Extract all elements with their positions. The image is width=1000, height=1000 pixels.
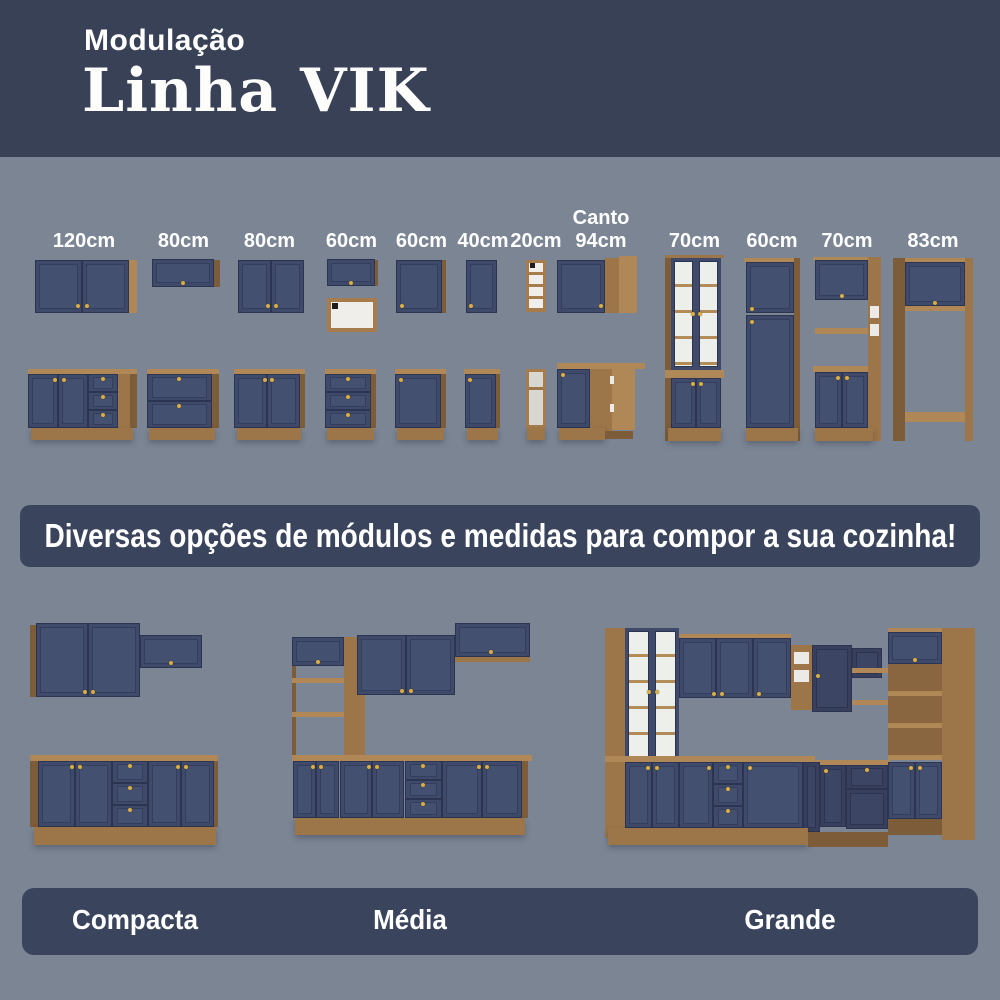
wood-panel — [371, 374, 376, 428]
wood-panel — [129, 260, 137, 313]
module-40cm: 40cm — [464, 200, 502, 445]
banner-text: Diversas opções de módulos e medidas par… — [44, 517, 956, 555]
kitchen-label-grande: Grande — [744, 904, 835, 936]
knob — [169, 661, 173, 665]
page: Modulação Linha VIK 120cm — [0, 0, 1000, 1000]
corner-wood-panel — [619, 256, 637, 313]
knob — [691, 312, 695, 316]
folding-panel — [612, 366, 635, 430]
knob — [720, 692, 724, 696]
wood-panel — [522, 761, 528, 818]
knob — [128, 764, 132, 768]
wood-panel — [118, 374, 130, 428]
knob — [399, 378, 403, 382]
knob — [274, 304, 278, 308]
module-60cm-b: 60cm — [395, 200, 448, 445]
module-canto-94cm: Canto 94cm — [557, 200, 645, 445]
knob — [909, 766, 913, 770]
module-70cm-glass: 70cm — [665, 200, 724, 445]
kitchen-label-media: Média — [373, 904, 447, 936]
hinge — [610, 376, 614, 384]
open-shelves — [888, 664, 942, 760]
module-label: 83cm — [873, 200, 993, 252]
door — [915, 762, 942, 819]
door — [482, 761, 522, 818]
knob — [865, 768, 869, 772]
toe-kick — [149, 428, 215, 440]
knob — [400, 689, 404, 693]
toe-kick — [34, 827, 216, 845]
folding-panel — [590, 369, 612, 431]
open-shelf-unit — [526, 260, 546, 312]
door — [340, 761, 372, 818]
knob — [83, 690, 87, 694]
door — [842, 372, 868, 428]
knob — [599, 304, 603, 308]
kitchen-compacta-graphic — [28, 615, 220, 885]
toe-kick — [668, 428, 721, 441]
door — [38, 761, 75, 827]
door — [372, 761, 404, 818]
kitchen-media-graphic — [292, 615, 532, 885]
door — [406, 635, 455, 695]
knob — [707, 766, 711, 770]
flip-door — [852, 648, 882, 678]
door — [316, 761, 339, 818]
knob — [824, 769, 828, 773]
knob — [726, 765, 730, 769]
module-60cm-tall: 60cm — [744, 200, 800, 445]
knob — [561, 373, 565, 377]
door — [293, 761, 316, 818]
shelf — [852, 668, 890, 673]
knob — [346, 395, 350, 399]
knob — [836, 376, 840, 380]
knob — [712, 692, 716, 696]
knob — [128, 786, 132, 790]
glass-door — [652, 628, 679, 760]
knob — [468, 378, 472, 382]
knob — [346, 413, 350, 417]
door — [75, 761, 112, 827]
corner-door — [812, 645, 852, 712]
door — [557, 369, 590, 428]
knob — [101, 395, 105, 399]
door — [815, 372, 842, 428]
door — [267, 374, 300, 428]
door — [746, 262, 794, 313]
shelf — [905, 412, 965, 422]
wood-panel — [442, 260, 446, 313]
knob — [85, 304, 89, 308]
toe-kick — [559, 428, 605, 440]
shelf-item — [332, 303, 338, 309]
shelf — [455, 657, 530, 662]
knob — [757, 692, 761, 696]
shelf — [815, 328, 868, 334]
toe-kick — [467, 428, 498, 440]
door — [557, 260, 605, 313]
knob — [128, 808, 132, 812]
door — [36, 623, 88, 697]
kitchen-label-compacta: Compacta — [72, 904, 198, 936]
knob — [816, 674, 820, 678]
wood-panel — [214, 761, 218, 827]
door — [442, 761, 482, 818]
toe-kick — [295, 818, 525, 835]
knob — [53, 378, 57, 382]
header-subtitle: Modulação — [84, 24, 245, 58]
knob — [181, 281, 185, 285]
towel-rail — [529, 387, 543, 390]
toe-kick — [808, 832, 888, 847]
knob — [477, 765, 481, 769]
door — [82, 260, 129, 313]
wood-panel — [794, 258, 800, 441]
info-banner: Diversas opções de módulos e medidas par… — [20, 505, 980, 567]
header-title: Linha VIK — [82, 56, 430, 126]
module-80cm-a: 80cm — [147, 200, 220, 445]
knob — [91, 690, 95, 694]
door — [679, 638, 716, 698]
wood-panel — [212, 374, 219, 428]
knob — [70, 765, 74, 769]
knob — [101, 413, 105, 417]
door — [846, 789, 888, 829]
door — [465, 374, 496, 428]
corner-wood-panel — [605, 258, 619, 313]
knob — [176, 765, 180, 769]
shelf — [292, 712, 344, 717]
door — [35, 260, 82, 313]
shelf — [852, 700, 890, 705]
toe-kick — [815, 428, 873, 441]
knob — [349, 281, 353, 285]
door — [234, 374, 267, 428]
toe-kick — [608, 828, 808, 845]
knob — [367, 765, 371, 769]
wood-panel — [441, 374, 446, 428]
door — [716, 638, 753, 698]
header: Modulação Linha VIK — [0, 0, 1000, 157]
module-83cm: 83cm — [893, 200, 973, 445]
door — [148, 761, 181, 827]
knob — [655, 690, 659, 694]
knob — [375, 765, 379, 769]
knob — [421, 802, 425, 806]
knob — [655, 766, 659, 770]
open-base-unit — [526, 369, 546, 428]
knob — [400, 304, 404, 308]
hinge — [610, 404, 614, 412]
toe-kick — [888, 819, 942, 835]
wood-column — [893, 258, 905, 441]
module-80cm-b: 80cm — [233, 200, 306, 445]
shelf — [905, 306, 965, 311]
knob — [726, 809, 730, 813]
knob — [726, 787, 730, 791]
door — [625, 762, 652, 828]
door — [746, 315, 794, 428]
knob — [698, 312, 702, 316]
knob — [933, 301, 937, 305]
door — [88, 623, 140, 697]
knob — [316, 660, 320, 664]
door — [28, 374, 58, 428]
module-70cm-tall-open: 70cm — [813, 200, 881, 445]
knob — [101, 377, 105, 381]
toe-kick — [605, 431, 633, 439]
wood-panel — [375, 260, 378, 286]
knob — [750, 307, 754, 311]
knob — [750, 320, 754, 324]
knob — [177, 404, 181, 408]
door — [820, 765, 846, 827]
knob — [421, 783, 425, 787]
knob — [647, 690, 651, 694]
wood-panel — [130, 374, 137, 428]
door — [679, 762, 713, 828]
knob — [646, 766, 650, 770]
knob — [845, 376, 849, 380]
knob — [263, 378, 267, 382]
toe-kick — [527, 428, 545, 440]
toe-kick — [237, 428, 301, 440]
wood-column — [942, 628, 975, 840]
shelf — [292, 678, 344, 683]
kitchen-grande-graphic — [600, 612, 980, 892]
door — [743, 762, 803, 828]
wood-panel — [605, 628, 625, 838]
knob — [409, 689, 413, 693]
knob — [319, 765, 323, 769]
wood-panel — [300, 374, 305, 428]
door — [652, 762, 679, 828]
knob — [469, 304, 473, 308]
knob — [266, 304, 270, 308]
shelf-slot — [870, 306, 879, 318]
knob — [62, 378, 66, 382]
knob — [184, 765, 188, 769]
knob — [691, 382, 695, 386]
wood-panel — [665, 370, 724, 378]
knob — [918, 766, 922, 770]
knob — [913, 658, 917, 662]
knob — [177, 377, 181, 381]
knob — [270, 378, 274, 382]
knob — [489, 650, 493, 654]
module-60cm-a: 60cm — [325, 200, 378, 445]
shelf-item — [530, 263, 535, 268]
shelf-slot — [870, 324, 879, 336]
door — [395, 374, 441, 428]
toe-kick — [746, 428, 798, 441]
wood-panel — [496, 374, 500, 428]
glass-door — [625, 628, 652, 760]
knob — [421, 764, 425, 768]
shelf-slot — [794, 652, 809, 664]
door — [753, 638, 791, 698]
knob — [699, 382, 703, 386]
toe-kick — [327, 428, 374, 440]
wood-panel — [30, 761, 38, 827]
shelf-slot — [794, 670, 809, 682]
door — [888, 762, 915, 819]
knob — [485, 765, 489, 769]
flip-door — [905, 262, 965, 306]
size-band: Compacta Média Grande — [22, 888, 978, 955]
toe-kick — [397, 428, 444, 440]
module-120cm: 120cm — [28, 200, 140, 445]
door — [58, 374, 88, 428]
knob — [346, 377, 350, 381]
corner-panel — [803, 762, 820, 832]
wood-column — [868, 257, 881, 441]
door — [181, 761, 214, 827]
toe-kick — [31, 428, 133, 440]
wood-panel — [214, 260, 220, 287]
knob — [840, 294, 844, 298]
door — [357, 635, 406, 695]
knob — [76, 304, 80, 308]
knob — [78, 765, 82, 769]
wood-column — [965, 258, 973, 441]
knob — [311, 765, 315, 769]
knob — [748, 766, 752, 770]
